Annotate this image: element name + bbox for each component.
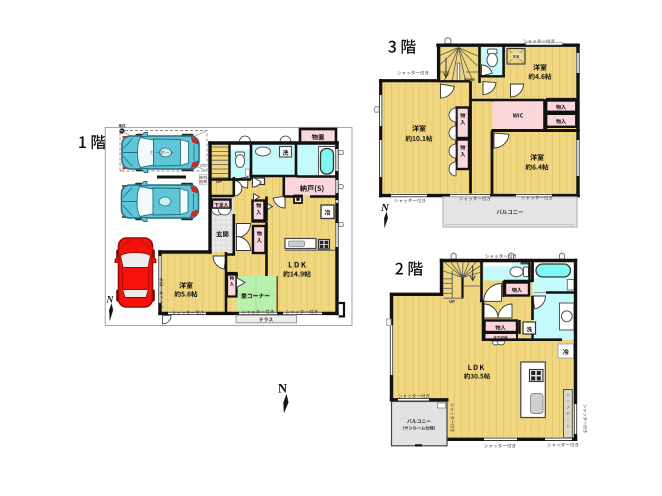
svg-text:N: N [106, 296, 115, 306]
svg-text:N: N [278, 382, 287, 396]
svg-text:N: N [380, 202, 390, 214]
